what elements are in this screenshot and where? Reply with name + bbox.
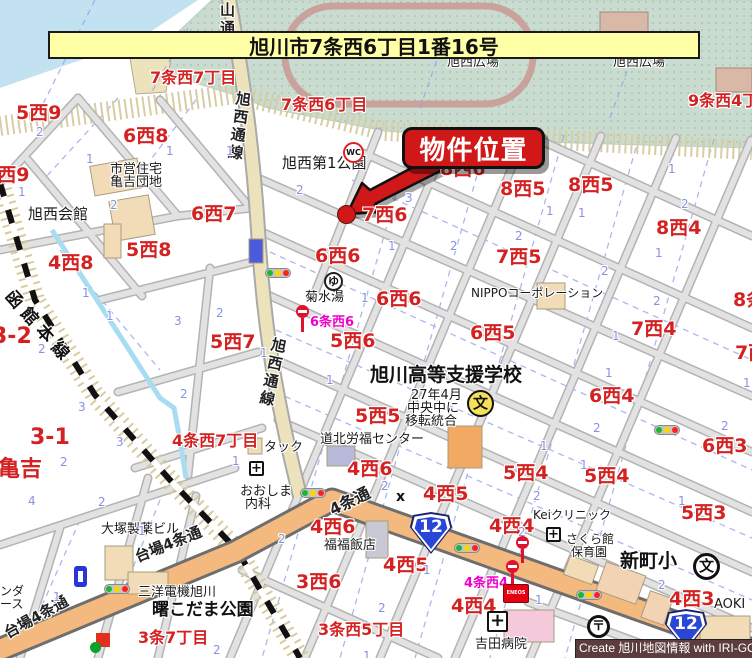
property-location-callout-text: 物件位置 — [419, 130, 527, 167]
park-building — [716, 68, 752, 92]
map-base — [0, 0, 752, 658]
map-credit: Create 旭川地図情報 with IRI-GO — [575, 639, 752, 658]
map-credit-text: Create 旭川地図情報 with IRI-GO — [579, 641, 752, 655]
address-banner-text: 旭川市7条西6丁目1番16号 — [249, 31, 499, 60]
map-canvas: 山通旭西通線旭西通線函館本線台場4条通台場4条通4条通旭西広場旭西広場7条西7丁… — [0, 0, 752, 658]
property-location-callout: 物件位置 — [402, 127, 545, 169]
address-banner: 旭川市7条西6丁目1番16号 — [48, 31, 700, 59]
